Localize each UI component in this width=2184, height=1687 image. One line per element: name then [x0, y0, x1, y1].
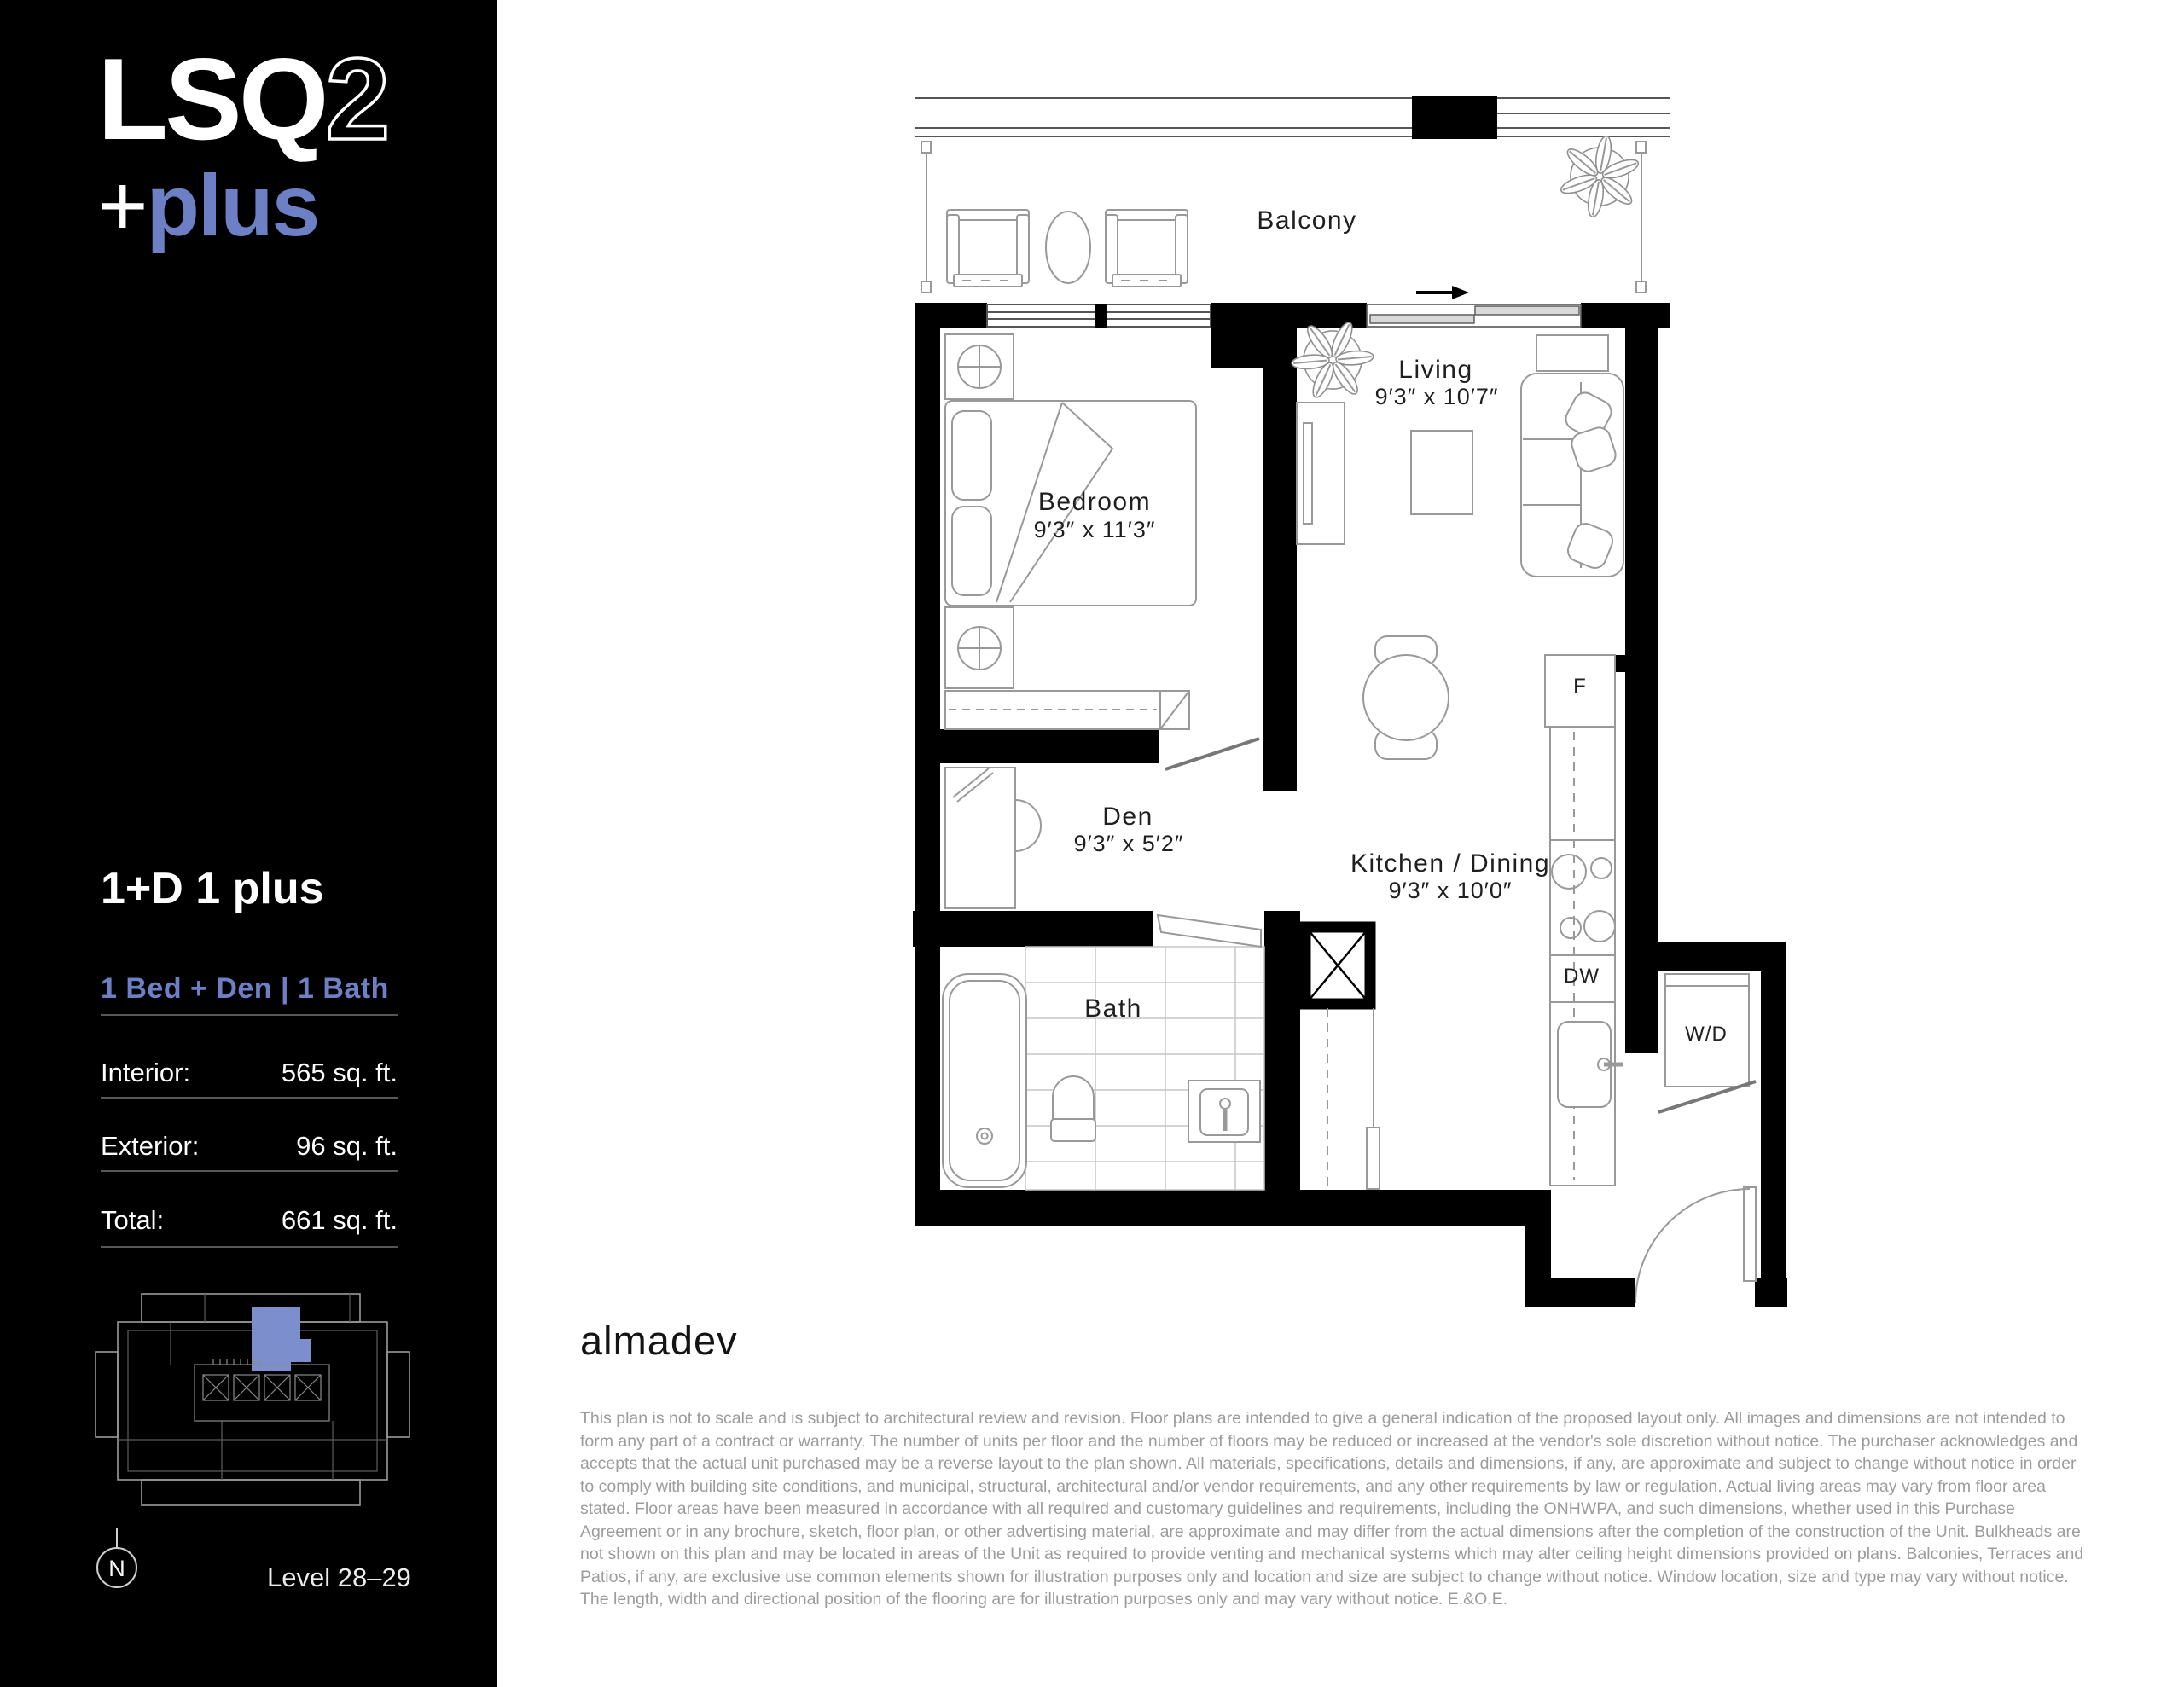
stat-row-exterior: Exterior: 96 sq. ft.: [101, 1131, 398, 1162]
brand-tagline-plus: +: [97, 157, 147, 254]
svg-text:N: N: [108, 1556, 125, 1581]
unit-configuration: 1 Bed + Den | 1 Bath: [101, 972, 389, 1006]
brand-tagline-word: plus: [147, 157, 319, 254]
divider: [101, 1246, 398, 1248]
highlighted-unit: [252, 1307, 311, 1371]
room-label-bedroom: Bedroom: [1038, 488, 1151, 516]
stat-row-total: Total: 661 sq. ft.: [101, 1205, 398, 1236]
brand-logo: LSQ2 +plus: [97, 41, 386, 249]
bath-fixtures: [943, 915, 1264, 1190]
balcony-furniture: [947, 210, 1188, 287]
divider: [101, 1097, 398, 1099]
room-dims-living: 9′3″ x 10′7″: [1375, 384, 1499, 409]
room-label-balcony: Balcony: [1257, 206, 1356, 235]
building-key-plan: N: [0, 1279, 497, 1620]
stat-label: Total:: [101, 1205, 164, 1235]
balcony-sliding-door: [1367, 304, 1581, 327]
den-furniture: [945, 768, 1041, 908]
level-label: Level 28–29: [267, 1562, 411, 1593]
balcony-entry-arrow-icon: [1416, 286, 1469, 299]
room-dims-bedroom: 9′3″ x 11′3″: [1034, 517, 1156, 542]
stat-label: Interior:: [101, 1058, 190, 1087]
bedroom-furniture: [945, 334, 1259, 769]
divider: [101, 1170, 398, 1172]
stat-label: Exterior:: [101, 1131, 199, 1161]
room-label-kitchen-dining: Kitchen / Dining: [1350, 849, 1550, 878]
stat-row-interior: Interior: 565 sq. ft.: [101, 1058, 398, 1088]
developer-logo: almadev: [580, 1317, 738, 1364]
mechanical-shaft: [1305, 927, 1370, 1004]
potted-plant-icon: [1545, 122, 1655, 232]
north-compass-icon: N: [97, 1528, 136, 1587]
brand-logo-text: LSQ: [97, 34, 326, 164]
bedroom-window: [987, 304, 1211, 328]
room-label-den: Den: [1102, 803, 1153, 831]
entry-door: [1635, 1187, 1756, 1303]
brand-logo-numeral: 2: [326, 34, 387, 164]
stat-value: 565 sq. ft.: [282, 1058, 398, 1088]
divider: [101, 1014, 398, 1016]
sidebar: LSQ2 +plus 1+D 1 plus 1 Bed + Den | 1 Ba…: [0, 0, 497, 1687]
room-label-living: Living: [1398, 356, 1472, 384]
dining-table: [1363, 636, 1449, 759]
appliance-label-dishwasher: DW: [1564, 965, 1600, 988]
stat-value: 661 sq. ft.: [282, 1205, 398, 1236]
room-label-bath: Bath: [1084, 994, 1142, 1023]
room-dims-den: 9′3″ x 5′2″: [1074, 831, 1184, 856]
stat-value: 96 sq. ft.: [296, 1131, 398, 1162]
plan-name: 1+D 1 plus: [101, 863, 324, 914]
legal-disclaimer: This plan is not to scale and is subject…: [580, 1407, 2092, 1611]
appliance-label-washer-dryer: W/D: [1685, 1023, 1728, 1046]
room-dims-kitchen-dining: 9′3″ x 10′0″: [1389, 878, 1513, 903]
appliance-label-fridge: F: [1573, 675, 1587, 698]
